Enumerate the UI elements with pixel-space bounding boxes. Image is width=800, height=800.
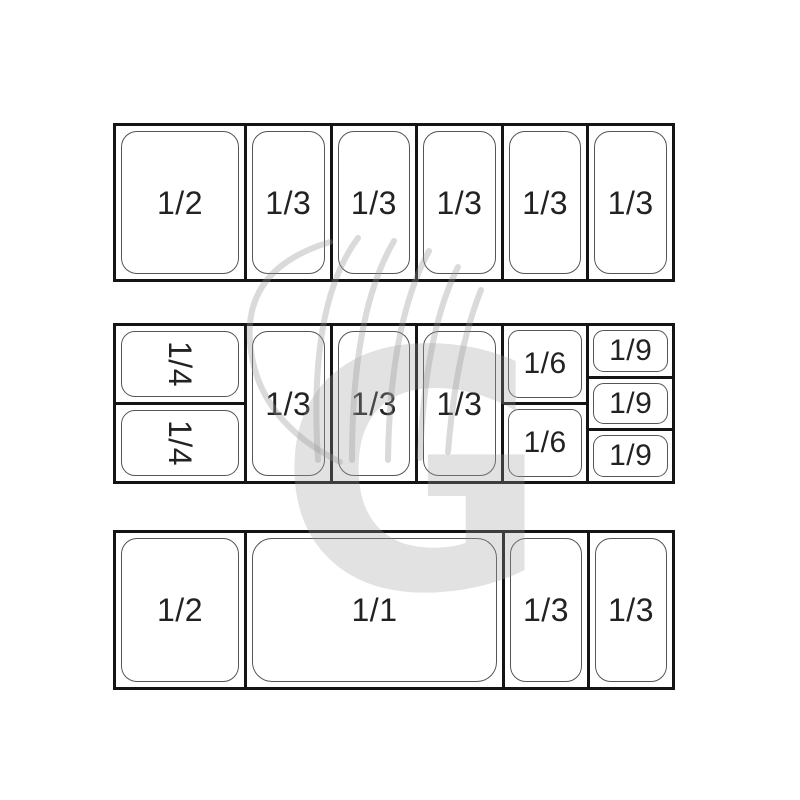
pan-outline: 1/3 <box>252 331 325 476</box>
pan-size-label: 1/9 <box>609 336 652 366</box>
gn-row-bottom: 1/2 1/1 1/3 1/3 <box>113 530 675 690</box>
pan-cell-1-3: 1/3 <box>504 126 587 279</box>
gastronorm-diagram: 1/2 1/3 1/3 1/3 1/3 1/3 <box>0 0 800 800</box>
pan-size-label: 1/4 <box>164 420 196 466</box>
pan-size-label: 1/6 <box>523 428 566 458</box>
pan-size-label: 1/6 <box>523 349 566 379</box>
pan-size-label: 1/2 <box>157 187 203 219</box>
pan-cell-1-3: 1/3 <box>247 126 330 279</box>
pan-cell-1-9: 1/9 <box>589 431 672 481</box>
gn-row-top: 1/2 1/3 1/3 1/3 1/3 1/3 <box>113 123 675 282</box>
pan-outline: 1/3 <box>423 331 496 476</box>
pan-size-label: 1/3 <box>522 187 568 219</box>
pan-size-label: 1/3 <box>608 594 654 626</box>
pan-cell-1-3: 1/3 <box>418 326 501 481</box>
pan-outline: 1/3 <box>423 131 496 274</box>
pan-cell-1-4: 1/4 <box>116 405 244 481</box>
pan-outline: 1/4 <box>121 331 239 397</box>
pan-size-label: 1/3 <box>608 187 654 219</box>
pan-outline: 1/1 <box>252 538 497 682</box>
pan-outline: 1/2 <box>121 131 239 274</box>
pan-cell-1-2: 1/2 <box>116 533 244 687</box>
pan-cell-1-3: 1/3 <box>590 533 672 687</box>
pan-outline: 1/9 <box>593 383 668 425</box>
pan-cell-1-3: 1/3 <box>418 126 501 279</box>
pan-size-label: 1/9 <box>609 441 652 471</box>
pan-column-ninths: 1/9 1/9 1/9 <box>589 326 672 481</box>
pan-outline: 1/3 <box>594 131 667 274</box>
pan-outline: 1/9 <box>593 330 668 372</box>
pan-outline: 1/2 <box>121 538 239 682</box>
pan-size-label: 1/9 <box>609 389 652 419</box>
pan-size-label: 1/3 <box>436 388 482 420</box>
pan-size-label: 1/1 <box>352 594 398 626</box>
pan-outline: 1/3 <box>338 131 411 274</box>
pan-cell-1-9: 1/9 <box>589 379 672 429</box>
pan-outline: 1/3 <box>252 131 325 274</box>
pan-size-label: 1/3 <box>351 388 397 420</box>
pan-outline: 1/3 <box>338 331 411 476</box>
pan-size-label: 1/3 <box>523 594 569 626</box>
pan-size-label: 1/3 <box>265 388 311 420</box>
pan-outline: 1/4 <box>121 410 239 476</box>
pan-cell-1-3: 1/3 <box>589 126 672 279</box>
pan-cell-1-4: 1/4 <box>116 326 244 402</box>
pan-size-label: 1/4 <box>164 341 196 387</box>
pan-cell-1-2: 1/2 <box>116 126 244 279</box>
pan-size-label: 1/3 <box>351 187 397 219</box>
pan-size-label: 1/3 <box>265 187 311 219</box>
pan-cell-1-1: 1/1 <box>247 533 502 687</box>
pan-size-label: 1/3 <box>436 187 482 219</box>
pan-cell-1-6: 1/6 <box>504 405 587 481</box>
pan-outline: 1/6 <box>508 409 583 477</box>
pan-outline: 1/9 <box>593 435 668 477</box>
pan-outline: 1/3 <box>595 538 667 682</box>
pan-cell-1-3: 1/3 <box>505 533 587 687</box>
pan-column-quarters: 1/4 1/4 <box>116 326 244 481</box>
pan-size-label: 1/2 <box>157 594 203 626</box>
pan-outline: 1/3 <box>510 538 582 682</box>
pan-cell-1-3: 1/3 <box>333 326 416 481</box>
pan-outline: 1/6 <box>508 330 583 398</box>
pan-cell-1-3: 1/3 <box>333 126 416 279</box>
pan-column-sixths: 1/6 1/6 <box>504 326 587 481</box>
gn-row-middle: 1/4 1/4 1/3 1/3 1/3 <box>113 323 675 484</box>
pan-cell-1-9: 1/9 <box>589 326 672 376</box>
pan-outline: 1/3 <box>509 131 582 274</box>
pan-cell-1-3: 1/3 <box>247 326 330 481</box>
pan-cell-1-6: 1/6 <box>504 326 587 402</box>
